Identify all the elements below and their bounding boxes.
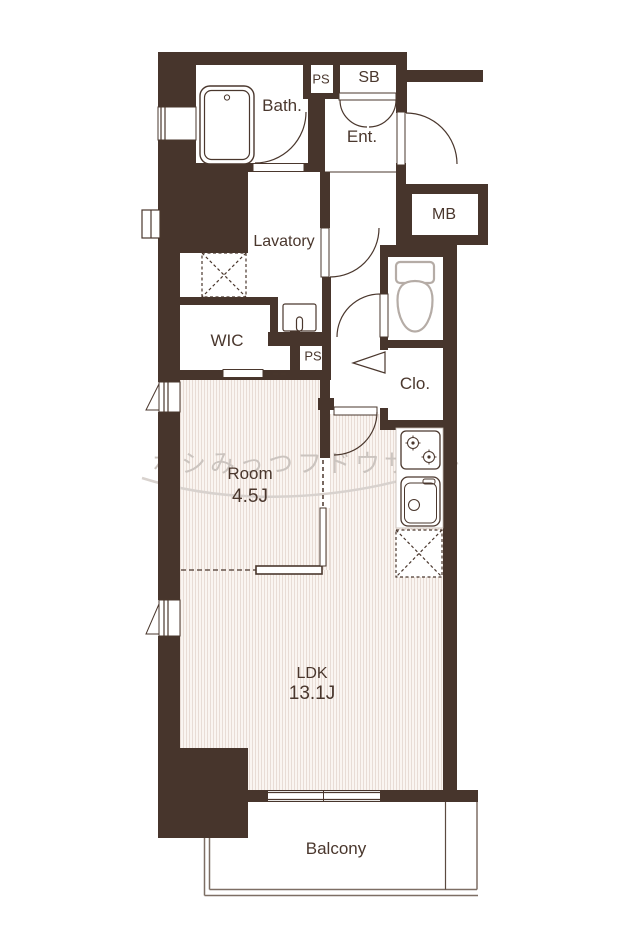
wall-segment [320, 380, 330, 458]
wall-segment [158, 163, 248, 253]
wic-label: WIC [210, 331, 243, 351]
ldk-floor-join [320, 508, 330, 570]
closet-label: Clo. [400, 374, 430, 394]
room-label: Room [227, 464, 272, 484]
wall-segment [290, 305, 300, 380]
closet-folding-door-icon [353, 352, 385, 373]
wall-segment [158, 297, 270, 305]
washer-pan-icon [202, 253, 246, 297]
wall-segment [380, 245, 457, 257]
wall-segment [303, 93, 339, 99]
wall-segment [443, 257, 457, 802]
wall-segment [158, 52, 407, 65]
entrance-double-door-icon [340, 100, 396, 127]
front-door-icon [397, 112, 457, 165]
wall-segment [320, 172, 330, 228]
bath-label: Bath. [262, 96, 302, 116]
shoebox-label: SB [358, 69, 379, 87]
wall-segment [396, 65, 407, 113]
lavatory-label: Lavatory [253, 233, 314, 251]
room-size-label: 4.5J [232, 486, 268, 508]
wall-segment [158, 748, 248, 838]
wall-segment [158, 65, 196, 107]
entrance-label: Ent. [347, 127, 377, 147]
toilet-icon [396, 262, 434, 332]
wall-segment [380, 408, 388, 420]
ldk-size-label: 13.1J [289, 683, 335, 705]
wall-segment [158, 253, 180, 382]
wall-segment [158, 636, 180, 748]
wall-segment [248, 790, 478, 802]
shoebox-front-icon [339, 93, 396, 100]
wall-segment [380, 420, 457, 430]
room-window-icon [146, 382, 180, 412]
bathtub-icon [200, 86, 254, 164]
wall-segment [322, 277, 331, 380]
wall-segment [248, 163, 308, 172]
wall-segment [308, 93, 325, 172]
floorplan-canvas: ホシみっつフドウサン [0, 0, 630, 950]
toilet-door-icon [337, 294, 388, 337]
watermark-text: ホシみっつフドウサン [152, 444, 442, 480]
wall-segment [400, 70, 483, 82]
wall-segment [158, 370, 330, 380]
ps-bottom-label: PS [304, 349, 321, 364]
wall-segment [380, 340, 443, 348]
bath-window-icon [158, 107, 196, 140]
wall-segment [158, 140, 196, 163]
ps-top-label: PS [312, 72, 329, 87]
corridor-floor [330, 414, 380, 430]
ldk-window-icon [146, 600, 180, 636]
wall-segment [380, 257, 388, 294]
meter-box-label: MB [432, 206, 456, 224]
wall-segment [333, 65, 340, 93]
balcony-label: Balcony [306, 839, 366, 859]
ldk-label: LDK [296, 665, 327, 683]
wall-segment [158, 412, 180, 600]
lavatory-door-icon [321, 228, 379, 277]
